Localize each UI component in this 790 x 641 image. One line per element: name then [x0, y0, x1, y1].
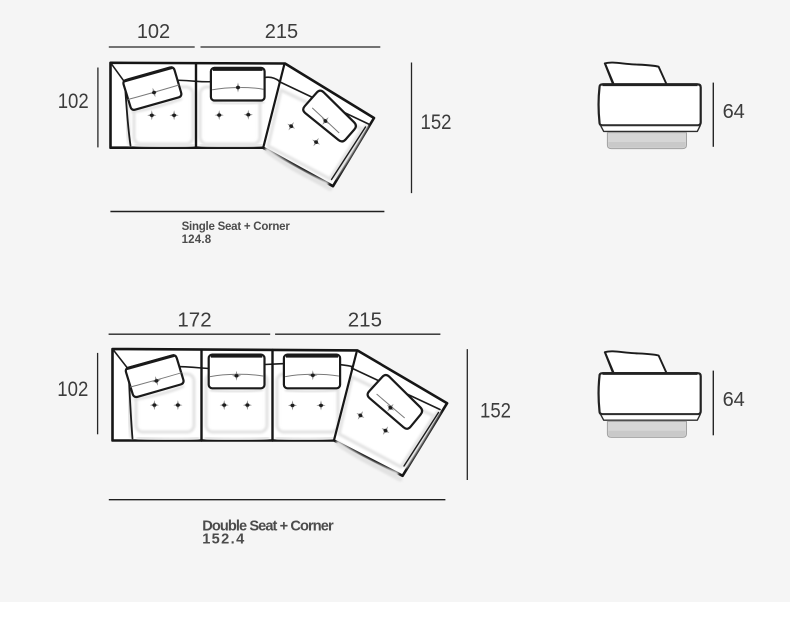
svg-text:102: 102 — [57, 377, 88, 401]
svg-text:152.4: 152.4 — [202, 532, 245, 548]
svg-text:152: 152 — [480, 399, 511, 423]
svg-text:102: 102 — [137, 21, 170, 43]
svg-text:152: 152 — [421, 110, 452, 134]
svg-text:172: 172 — [177, 308, 211, 331]
svg-text:102: 102 — [58, 89, 89, 113]
svg-text:215: 215 — [348, 308, 382, 331]
svg-text:64: 64 — [723, 389, 745, 411]
svg-text:215: 215 — [265, 21, 298, 43]
svg-text:124.8: 124.8 — [182, 234, 212, 246]
svg-text:64: 64 — [723, 101, 745, 123]
svg-text:Single Seat + Corner: Single Seat + Corner — [182, 221, 291, 233]
